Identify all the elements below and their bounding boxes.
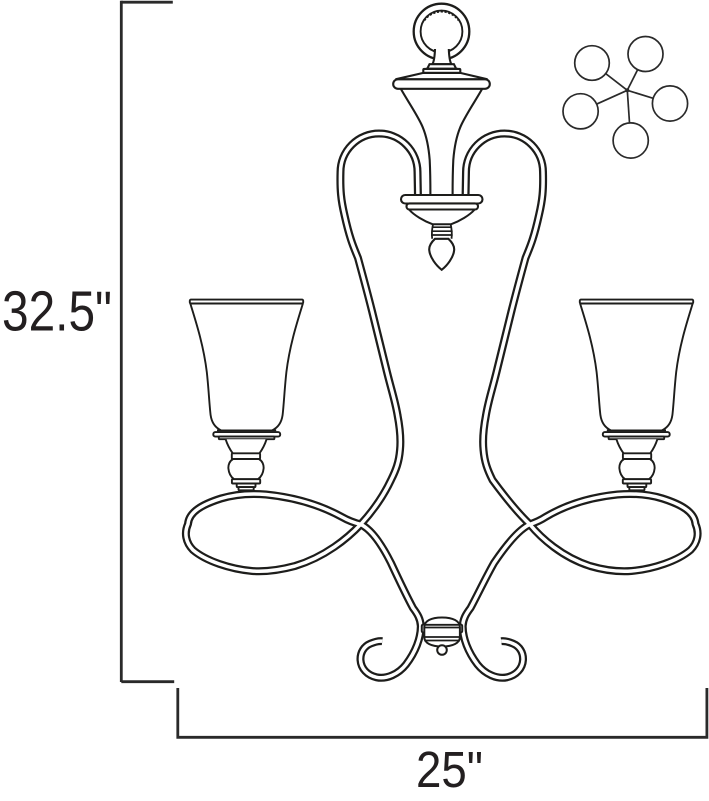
svg-text:32.5": 32.5" xyxy=(2,280,112,344)
svg-text:25": 25" xyxy=(416,741,483,798)
